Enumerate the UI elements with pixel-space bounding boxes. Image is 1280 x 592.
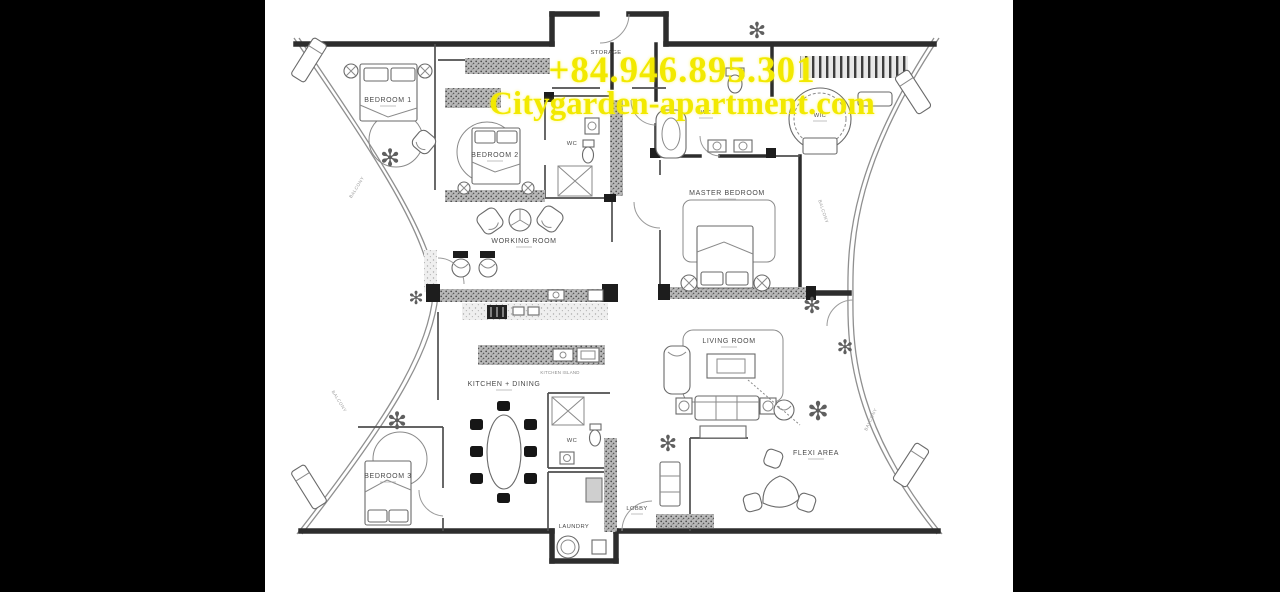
wardrobe-master: [800, 56, 908, 78]
video-frame: ✻ ✻ ✻ ✻ ✻ ✻ ✻ ✻ STORAGE BEDROOM 1 BEDROO…: [0, 0, 1280, 592]
room-label-flexi-area: FLEXI AREA: [793, 450, 839, 457]
plant-icon: ✻: [380, 145, 400, 172]
shaft-strip-lobby: [604, 438, 617, 532]
plant-icon: ✻: [408, 288, 423, 308]
plant-icon: ✻: [748, 18, 766, 43]
room-label-wc-lower: WC: [567, 438, 577, 444]
room-label-bedroom1: BEDROOM 1: [364, 97, 411, 104]
kitchen-counter: [436, 289, 606, 302]
plant-icon: ✻: [659, 431, 677, 456]
shoe-cabinet: [700, 426, 746, 438]
room-label-living-room: LIVING ROOM: [702, 338, 755, 345]
room-label-kitchen-dining: KITCHEN + DINING: [468, 381, 541, 388]
plant-icon: ✻: [807, 396, 829, 426]
plant-icon: ✻: [837, 337, 854, 359]
room-label-wc-upper: WC: [567, 141, 577, 147]
room-label-bedroom2: BEDROOM 2: [471, 152, 518, 159]
plant-icon: ✻: [387, 408, 407, 435]
room-label-laundry: LAUNDRY: [559, 524, 589, 530]
dining-table: [487, 415, 521, 489]
plant-icon: ✻: [803, 293, 821, 318]
entrance-mat: [656, 514, 714, 528]
wardrobe-strip: [465, 58, 550, 74]
washer: [557, 536, 579, 558]
console-table: [660, 462, 680, 506]
room-label-kitchen-island: KITCHEN ISLAND: [540, 370, 579, 375]
room-label-master-bedroom: MASTER BEDROOM: [689, 190, 765, 197]
room-label-lobby: LOBBY: [626, 506, 647, 512]
tv-console: [707, 354, 755, 378]
bench: [803, 138, 837, 154]
chaise: [664, 346, 690, 394]
room-label-working-room: WORKING ROOM: [491, 238, 556, 245]
watermark-website: Citygarden-apartment.com: [489, 86, 875, 123]
room-label-bedroom3: BEDROOM 3: [364, 473, 411, 480]
sofa: [695, 396, 759, 420]
